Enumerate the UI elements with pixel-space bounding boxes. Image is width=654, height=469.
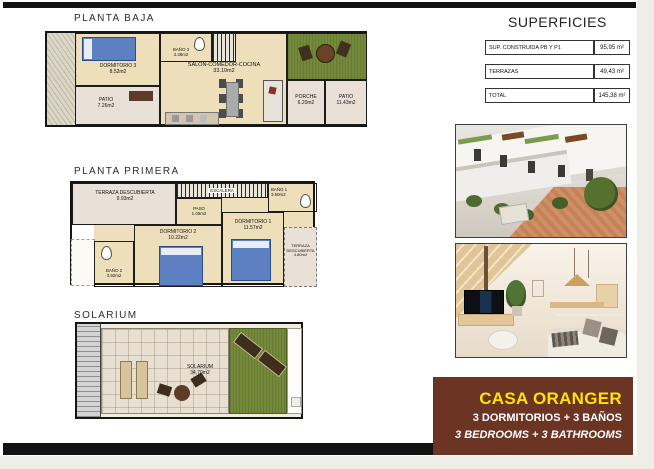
bush-shape (466, 195, 482, 207)
solarium-title: SOLARIUM (74, 310, 137, 321)
room-label: PASO 1.05m2 (177, 206, 221, 216)
room-patio-grande: PATIO 11.43m2 (325, 80, 367, 125)
room-area: 11.43m2 (326, 101, 366, 107)
pendant-cord-shape (574, 248, 575, 276)
room-area: 34,70m2 (172, 371, 228, 377)
banner-line-es: 3 DORMITORIOS + 3 BAÑOS (473, 412, 622, 426)
room-label: DORMITORIO 3 8.52m2 (80, 64, 156, 76)
room-escalera: ESCALERA (176, 183, 268, 198)
tree-shape (584, 177, 618, 211)
document-sheet: PLANTA BAJA SALON-COMEDOR-COCINA 33.10m2 (0, 0, 637, 456)
garden-chair-icon (336, 40, 351, 57)
room-label: PORCHE 6.20m2 (288, 95, 324, 107)
room-bano-1: BAÑO 1 3.60m2 (268, 183, 317, 212)
room-patio: PATIO 7.26m2 (75, 86, 160, 125)
room-paso: PASO 1.05m2 (176, 198, 222, 225)
sun-lounger-icon (136, 361, 148, 399)
room-label: SALON-COMEDOR-COCINA 33.10m2 (169, 62, 279, 75)
room-dormitorio-1: DORMITORIO 1 11.57m2 (222, 212, 284, 287)
room-label: BAÑO 1 3.60m2 (271, 187, 305, 197)
chair-icon (157, 383, 172, 397)
room-name: ESCALERA (208, 188, 235, 193)
superficies-row-value: 49,43 m² (594, 64, 630, 79)
pillow-icon (84, 39, 92, 59)
superficies-row-label: TERRAZAS (485, 64, 594, 79)
room-area: 11.57m2 (223, 226, 283, 232)
room-terraza-2: TERRAZA DESCUBIERTA 4.80m2 (284, 227, 317, 287)
room-area: 3.36m2 (162, 52, 200, 57)
bottom-rule (3, 443, 433, 455)
pillow-icon (233, 241, 269, 248)
room-area: 1.05m2 (177, 211, 221, 216)
pendant-lamp-shape (564, 274, 590, 286)
room-bano-2: BAÑO 2 3.92m2 (94, 241, 134, 287)
bed-icon (231, 239, 271, 281)
room-dormitorio-2: DORMITORIO 2 10.22m2 (134, 225, 222, 287)
toilet-icon (101, 246, 112, 260)
cushion-icon (268, 86, 276, 94)
planta-baja-title: PLANTA BAJA (74, 13, 155, 24)
dining-set-icon (219, 78, 245, 119)
room-area: 3.92m2 (95, 273, 133, 278)
garden-table-icon (316, 44, 335, 63)
bed-icon (82, 37, 136, 61)
room-dormitorio-3: DORMITORIO 3 8.52m2 (75, 33, 160, 86)
sofa-icon (263, 80, 283, 122)
kitchen-counter-icon (165, 112, 219, 125)
planter-shape (512, 306, 522, 316)
room-area: 8.52m2 (80, 70, 156, 76)
room-area: 9.93m2 (93, 197, 157, 203)
superficies-row-value: 145,38 m² (594, 88, 630, 103)
room-area: 10.22m2 (135, 236, 221, 242)
chairs-icon (219, 79, 226, 88)
toilet-icon (300, 194, 311, 208)
banner-line-en: 3 BEDROOMS + 3 BATHROOMS (455, 429, 622, 443)
room-porche: PORCHE 6.20m2 (287, 80, 325, 125)
garden-terrace (287, 33, 367, 80)
adjacent-strip (287, 328, 302, 414)
project-banner: CASA ORANGER 3 DORMITORIOS + 3 BAÑOS 3 B… (433, 377, 633, 455)
page: PLANTA BAJA SALON-COMEDOR-COCINA 33.10m2 (0, 0, 654, 469)
picture-frame-shape (532, 280, 544, 297)
tv-shape (464, 290, 504, 314)
coffee-table-shape (488, 330, 518, 350)
room-label: PATIO 7.26m2 (78, 98, 134, 110)
room-area: 6.20m2 (288, 101, 324, 107)
room-label: PATIO 11.43m2 (326, 95, 366, 107)
planta-baja-plan: SALON-COMEDOR-COCINA 33.10m2 DORMITORIO (45, 31, 367, 127)
windows-shape (474, 149, 481, 161)
sideboard-shape (458, 314, 514, 326)
bed-icon (159, 246, 203, 286)
planta-primera-title: PLANTA PRIMERA (74, 166, 180, 177)
solarium-deck: SOLARIUM 34,70m2 (101, 328, 229, 414)
vent-icon (291, 397, 301, 407)
stair-post-shape (484, 246, 488, 292)
superficies-title: SUPERFICIES (508, 14, 607, 30)
sun-lounger-icon (257, 350, 287, 377)
room-label: BAÑO 2 3.92m2 (95, 268, 133, 278)
dining-table-shape (550, 302, 604, 308)
planta-primera-plan: TERRAZA DESCUBIERTA 9.93m2 ESCALERA BAÑO… (70, 181, 315, 285)
room-label: BAÑO 3 3.36m2 (162, 47, 200, 57)
banner-title: CASA ORANGER (479, 389, 622, 409)
patio-outline (71, 239, 95, 286)
room-bano-3: BAÑO 3 3.36m2 (160, 33, 212, 62)
desk-icon (129, 91, 153, 101)
superficies-row-label: SUP. CONSTRUIDA PB Y P1 (485, 40, 594, 55)
superficies-row-label: TOTAL (485, 88, 594, 103)
interior-photo (455, 243, 627, 358)
room-area: 3.60m2 (271, 192, 305, 197)
round-table-icon (174, 385, 190, 401)
sun-lounger-icon (233, 332, 263, 359)
room-label: DORMITORIO 1 11.57m2 (223, 220, 283, 232)
room-label: DORMITORIO 2 10.22m2 (135, 230, 221, 242)
room-area: 4.80m2 (285, 253, 316, 258)
plant-shape (506, 280, 526, 308)
solarium-lawn (229, 328, 287, 414)
sun-lounger-icon (120, 361, 132, 399)
room-terraza-1: TERRAZA DESCUBIERTA 9.93m2 (72, 183, 176, 225)
stairs-icon (77, 324, 101, 417)
garden-strip (47, 33, 77, 125)
room-label: TERRAZA DESCUBIERTA 9.93m2 (93, 191, 157, 203)
room-label: TERRAZA DESCUBIERTA 4.80m2 (285, 244, 316, 258)
table-icon (226, 82, 239, 117)
room-label: SOLARIUM 34,70m2 (172, 365, 228, 377)
pillow-icon (161, 248, 201, 255)
solarium-plan: SOLARIUM 34,70m2 (75, 322, 303, 419)
room-area: 33.10m2 (169, 68, 279, 74)
superficies-row-value: 95,95 m² (594, 40, 630, 55)
stairs-icon (212, 33, 236, 62)
appliance-icon (172, 115, 179, 122)
room-area: 7.26m2 (78, 104, 134, 110)
top-rule (3, 2, 636, 8)
throw-blanket-shape (551, 331, 578, 348)
exterior-photo (455, 124, 627, 238)
garden-chair-icon (298, 45, 313, 62)
